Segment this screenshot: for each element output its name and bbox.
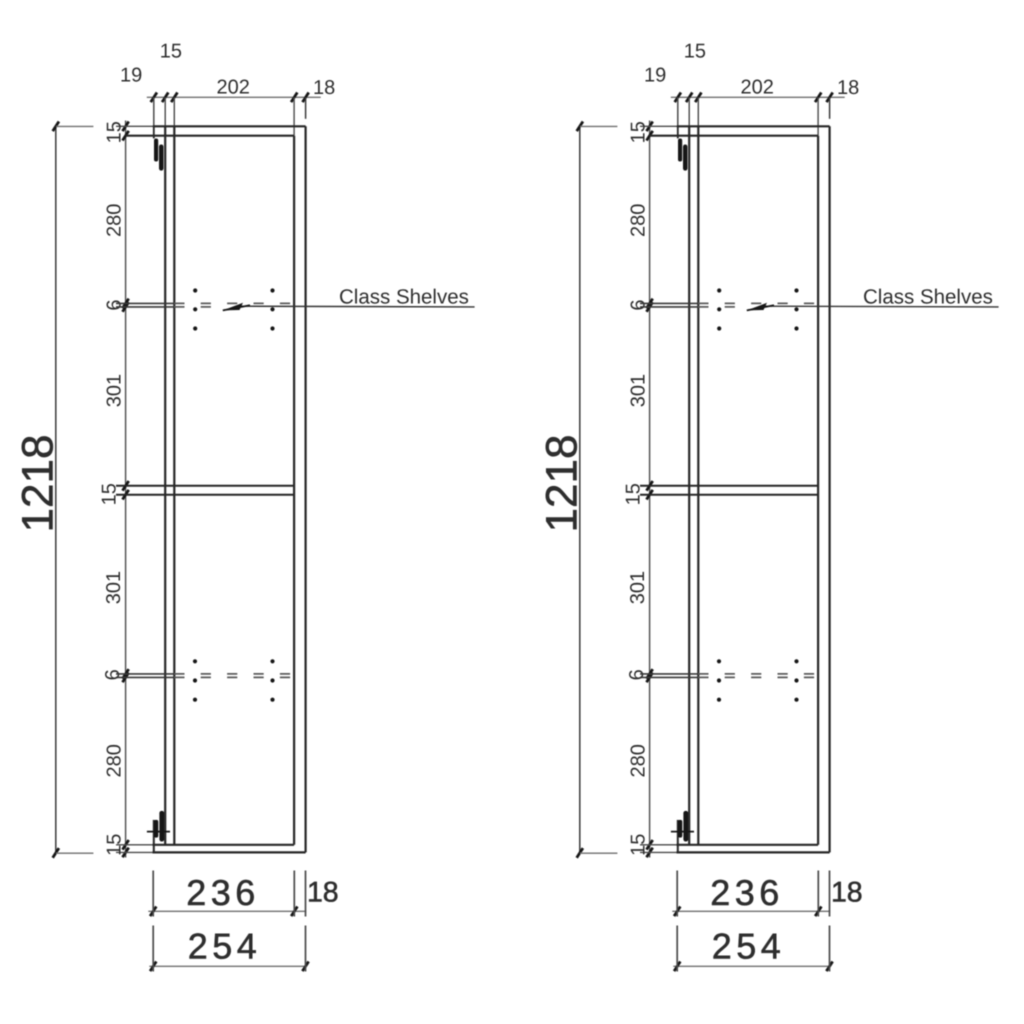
svg-text:1218: 1218: [538, 435, 587, 533]
svg-text:Class Shelves: Class Shelves: [339, 286, 469, 309]
svg-text:6: 6: [104, 299, 126, 310]
svg-text:202: 202: [741, 77, 774, 99]
svg-text:18: 18: [837, 77, 859, 99]
svg-text:15: 15: [104, 834, 126, 856]
svg-text:18: 18: [313, 77, 335, 99]
svg-text:19: 19: [644, 65, 666, 87]
svg-text:301: 301: [627, 571, 649, 604]
svg-text:301: 301: [628, 374, 650, 407]
svg-text:280: 280: [628, 744, 650, 777]
svg-text:15: 15: [684, 40, 706, 62]
svg-text:6: 6: [102, 669, 124, 680]
svg-text:236: 236: [710, 872, 784, 913]
svg-text:6: 6: [628, 299, 650, 310]
svg-text:15: 15: [160, 40, 182, 62]
svg-text:1218: 1218: [14, 435, 63, 533]
svg-text:202: 202: [217, 77, 250, 99]
svg-text:Class Shelves: Class Shelves: [863, 286, 993, 309]
svg-text:15: 15: [628, 834, 650, 856]
svg-text:280: 280: [104, 204, 126, 237]
svg-text:280: 280: [628, 204, 650, 237]
svg-text:254: 254: [712, 926, 786, 967]
svg-text:6: 6: [626, 669, 648, 680]
svg-text:280: 280: [104, 744, 126, 777]
svg-text:301: 301: [103, 571, 125, 604]
svg-text:15: 15: [628, 121, 650, 143]
svg-text:301: 301: [104, 374, 126, 407]
svg-text:18: 18: [831, 876, 863, 908]
svg-text:19: 19: [120, 65, 142, 87]
svg-text:254: 254: [188, 926, 262, 967]
svg-text:18: 18: [307, 876, 339, 908]
svg-text:15: 15: [104, 121, 126, 143]
svg-text:236: 236: [186, 872, 260, 913]
